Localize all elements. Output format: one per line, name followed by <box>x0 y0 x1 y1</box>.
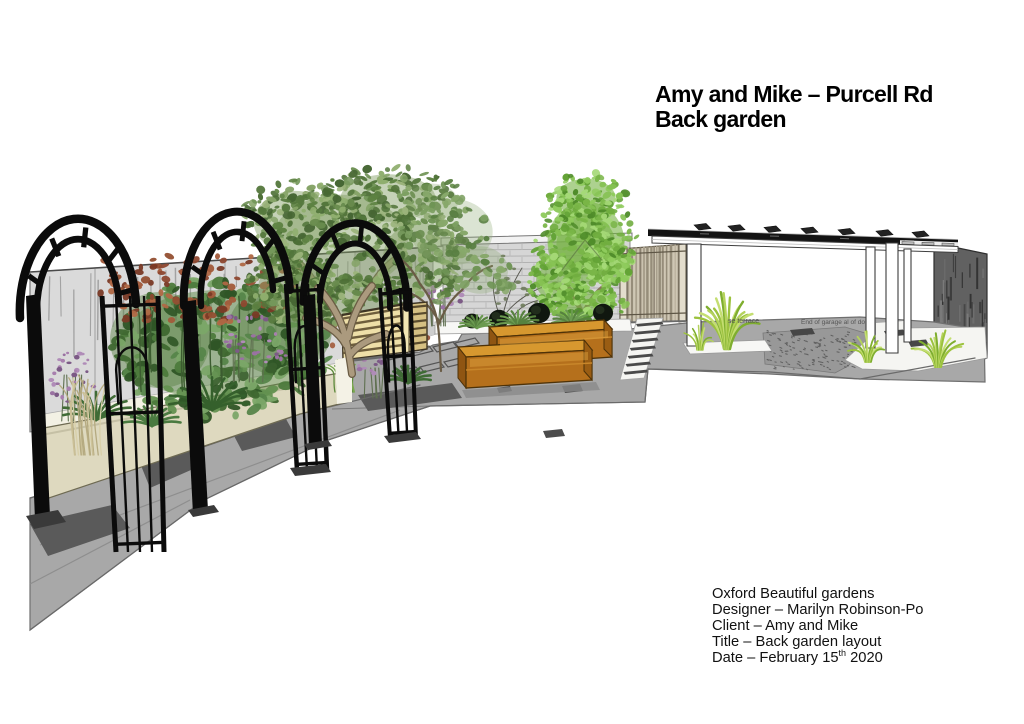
svg-text:se terrace: se terrace <box>728 318 759 325</box>
svg-text:End of garage al of do: End of garage al of do <box>801 319 865 326</box>
